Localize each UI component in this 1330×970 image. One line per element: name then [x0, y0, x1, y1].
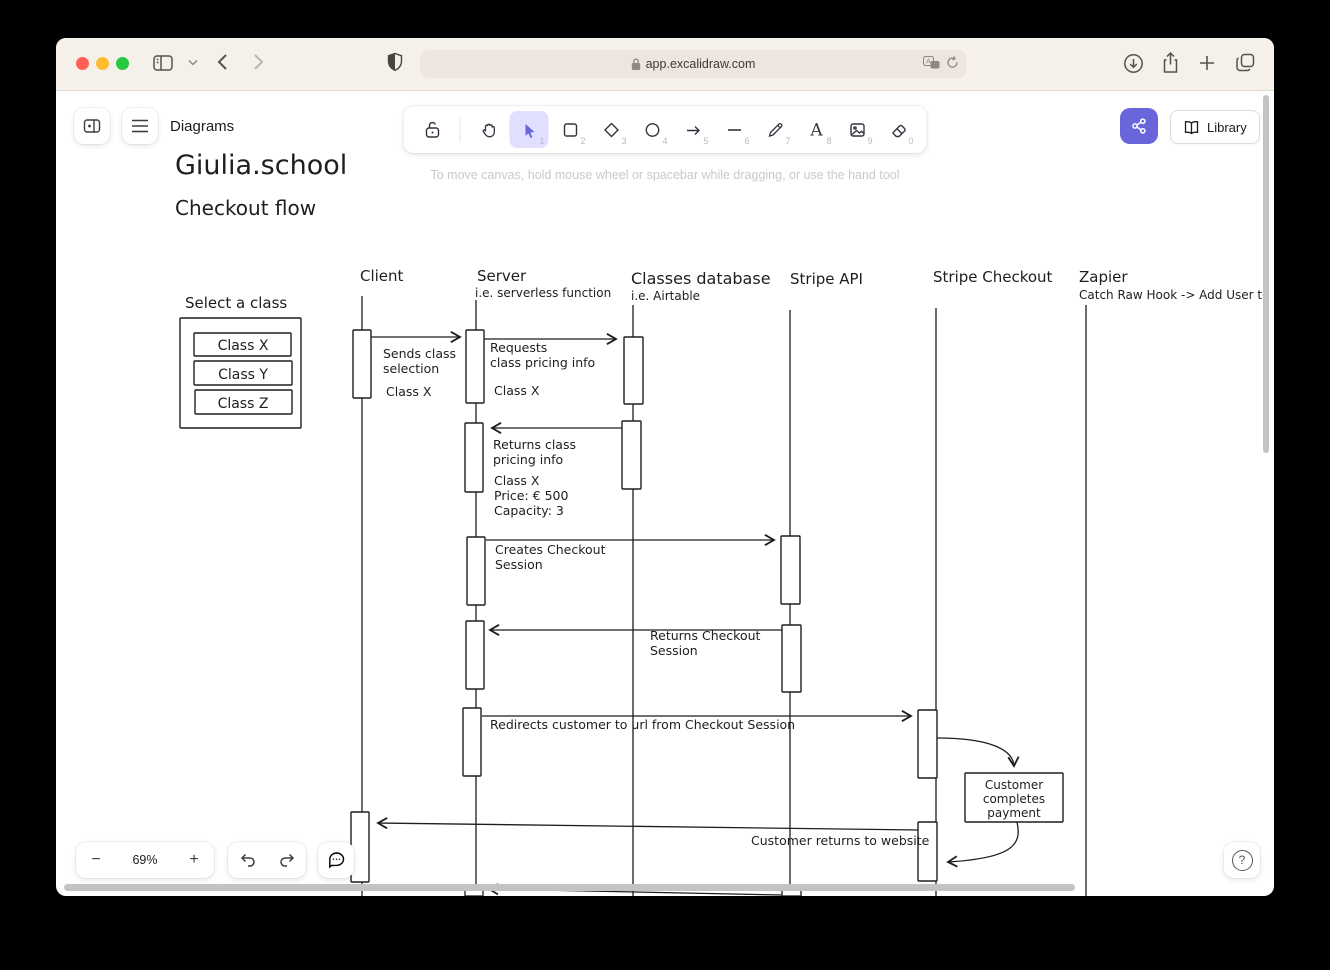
- message-label: Returns Checkout: [650, 628, 761, 643]
- actor-name: Zapier: [1079, 268, 1128, 286]
- shield-icon[interactable]: [387, 52, 403, 72]
- lock-open-icon: [423, 120, 441, 139]
- message-label: Redirects customer to url from Checkout …: [490, 717, 795, 732]
- actor-name: Client: [360, 267, 404, 285]
- minimize-window-button[interactable]: [96, 57, 109, 70]
- svg-text:A: A: [809, 120, 823, 140]
- message-label: class pricing info: [490, 355, 595, 370]
- close-window-button[interactable]: [76, 57, 89, 70]
- toolbar-divider: [460, 118, 461, 142]
- forward-icon[interactable]: [253, 53, 264, 71]
- downloads-icon[interactable]: [1123, 53, 1144, 74]
- comment-bubble-icon: [327, 851, 346, 869]
- message-label: Returns class: [493, 437, 576, 452]
- zoom-in-button[interactable]: +: [174, 842, 214, 878]
- address-bar[interactable]: app.excalidraw.com A: [420, 50, 966, 78]
- library-label: Library: [1207, 120, 1247, 135]
- actor-subtitle: i.e. serverless function: [475, 286, 611, 300]
- tool-rectangle-button[interactable]: 2: [551, 111, 590, 148]
- tool-draw-button[interactable]: 7: [756, 111, 795, 148]
- zoom-out-button[interactable]: −: [76, 842, 116, 878]
- new-tab-icon[interactable]: [1198, 54, 1216, 72]
- tool-lock-button[interactable]: [413, 111, 452, 148]
- share-nodes-icon: [1130, 117, 1148, 135]
- diagram-subtitle[interactable]: Checkout flow: [175, 196, 316, 220]
- url-host: app.excalidraw.com: [646, 57, 756, 71]
- canvas-hint: To move canvas, hold mouse wheel or spac…: [56, 168, 1274, 182]
- message-payload: Class X: [494, 383, 540, 398]
- comment-button[interactable]: [318, 842, 354, 878]
- library-button[interactable]: Library: [1170, 110, 1260, 144]
- message-label: selection: [383, 361, 439, 376]
- tool-selection-button[interactable]: 1: [510, 111, 549, 148]
- share-page-icon[interactable]: [1161, 51, 1180, 75]
- actor-subtitle: Catch Raw Hook -> Add User to Ex: [1079, 288, 1274, 302]
- class-option[interactable]: Class Z: [218, 396, 269, 412]
- payment-note-box[interactable]: Customer completes payment: [965, 773, 1063, 822]
- lock-icon: [631, 58, 641, 71]
- browser-titlebar: app.excalidraw.com A: [56, 38, 1274, 91]
- rectangle-icon: [560, 120, 580, 140]
- message-label: pricing info: [493, 452, 563, 467]
- actor-name: Stripe API: [790, 270, 863, 288]
- tool-eraser-button[interactable]: 0: [879, 111, 918, 148]
- line-icon: [724, 120, 744, 140]
- help-button[interactable]: ?: [1224, 842, 1260, 878]
- actor-labels[interactable]: Client Server i.e. serverless function C…: [360, 267, 1274, 303]
- canvas-vertical-scrollbar[interactable]: [1263, 95, 1269, 453]
- zoom-level[interactable]: 69%: [116, 853, 174, 867]
- toggle-dock-button[interactable]: [74, 108, 110, 144]
- dock-panel-icon: [82, 116, 102, 136]
- class-option[interactable]: Class Y: [218, 367, 268, 383]
- undo-button[interactable]: [228, 842, 267, 878]
- tool-island: 1 2 3 4 5 6 7: [404, 106, 927, 153]
- note-line: Customer: [985, 778, 1043, 792]
- actor-name: Server: [477, 267, 527, 285]
- svg-text:A: A: [926, 59, 931, 66]
- arrow-customer-returns: [378, 823, 918, 830]
- redo-button[interactable]: [267, 842, 306, 878]
- tool-ellipse-button[interactable]: 4: [633, 111, 672, 148]
- actor-name: Classes database: [631, 269, 771, 288]
- back-icon[interactable]: [217, 53, 228, 71]
- pencil-icon: [765, 120, 785, 140]
- share-button[interactable]: [1120, 108, 1158, 144]
- history-island: [228, 842, 306, 878]
- message-payload: Capacity: 3: [494, 503, 564, 518]
- canvas-horizontal-scrollbar[interactable]: [64, 884, 1075, 891]
- desktop-background: app.excalidraw.com A: [0, 0, 1330, 970]
- excalidraw-canvas[interactable]: Giulia.school Checkout flow Select a cla…: [56, 38, 1274, 896]
- reload-icon[interactable]: [946, 56, 959, 69]
- select-class-panel[interactable]: Select a class Class X Class Y Class Z: [180, 294, 301, 428]
- zoom-island: − 69% +: [76, 842, 214, 878]
- class-option[interactable]: Class X: [218, 338, 269, 354]
- arrow-icon: [683, 120, 703, 140]
- zoom-window-button[interactable]: [116, 57, 129, 70]
- diamond-icon: [601, 120, 621, 140]
- tool-arrow-button[interactable]: 5: [674, 111, 713, 148]
- ellipse-icon: [642, 120, 662, 140]
- hamburger-menu-icon: [131, 119, 149, 133]
- activation-boxes[interactable]: [351, 330, 937, 882]
- message-label: Customer returns to website: [751, 833, 930, 848]
- selection-cursor-icon: [519, 120, 539, 140]
- translate-icon[interactable]: A: [923, 56, 940, 69]
- arrow-to-payment-note: [937, 738, 1014, 766]
- tool-line-button[interactable]: 6: [715, 111, 754, 148]
- undo-icon: [239, 851, 257, 869]
- chevron-down-icon[interactable]: [188, 59, 198, 66]
- tool-image-button[interactable]: 9: [838, 111, 877, 148]
- arrow-from-payment-note: [948, 822, 1018, 862]
- question-mark-icon: ?: [1232, 850, 1253, 871]
- message-label: Session: [650, 643, 698, 658]
- tool-text-button[interactable]: A 8: [797, 111, 836, 148]
- message-payload: Price: € 500: [494, 488, 569, 503]
- select-class-heading: Select a class: [185, 294, 287, 312]
- message-payload: Class X: [386, 384, 432, 399]
- tab-overview-icon[interactable]: [1235, 52, 1256, 73]
- tool-diamond-button[interactable]: 3: [592, 111, 631, 148]
- browser-window: app.excalidraw.com A: [56, 38, 1274, 896]
- redo-icon: [278, 851, 296, 869]
- note-line: payment: [987, 806, 1041, 820]
- note-line: completes: [983, 792, 1045, 806]
- actor-subtitle: i.e. Airtable: [631, 289, 700, 303]
- page-title[interactable]: Diagrams: [170, 118, 234, 135]
- message-label: Creates Checkout: [495, 542, 606, 557]
- hand-icon: [478, 120, 498, 140]
- message-payload: Class X: [494, 473, 540, 488]
- message-label: Requests: [490, 340, 547, 355]
- message-label: Sends class: [383, 346, 456, 361]
- image-icon: [847, 120, 867, 140]
- eraser-icon: [888, 120, 908, 140]
- message-label: Session: [495, 557, 543, 572]
- actor-name: Stripe Checkout: [933, 268, 1053, 286]
- main-menu-button[interactable]: [122, 108, 158, 144]
- sidebar-toggle-icon[interactable]: [152, 53, 174, 73]
- tool-hand-button[interactable]: [469, 111, 508, 148]
- book-icon: [1183, 120, 1200, 135]
- text-icon: A: [806, 120, 826, 140]
